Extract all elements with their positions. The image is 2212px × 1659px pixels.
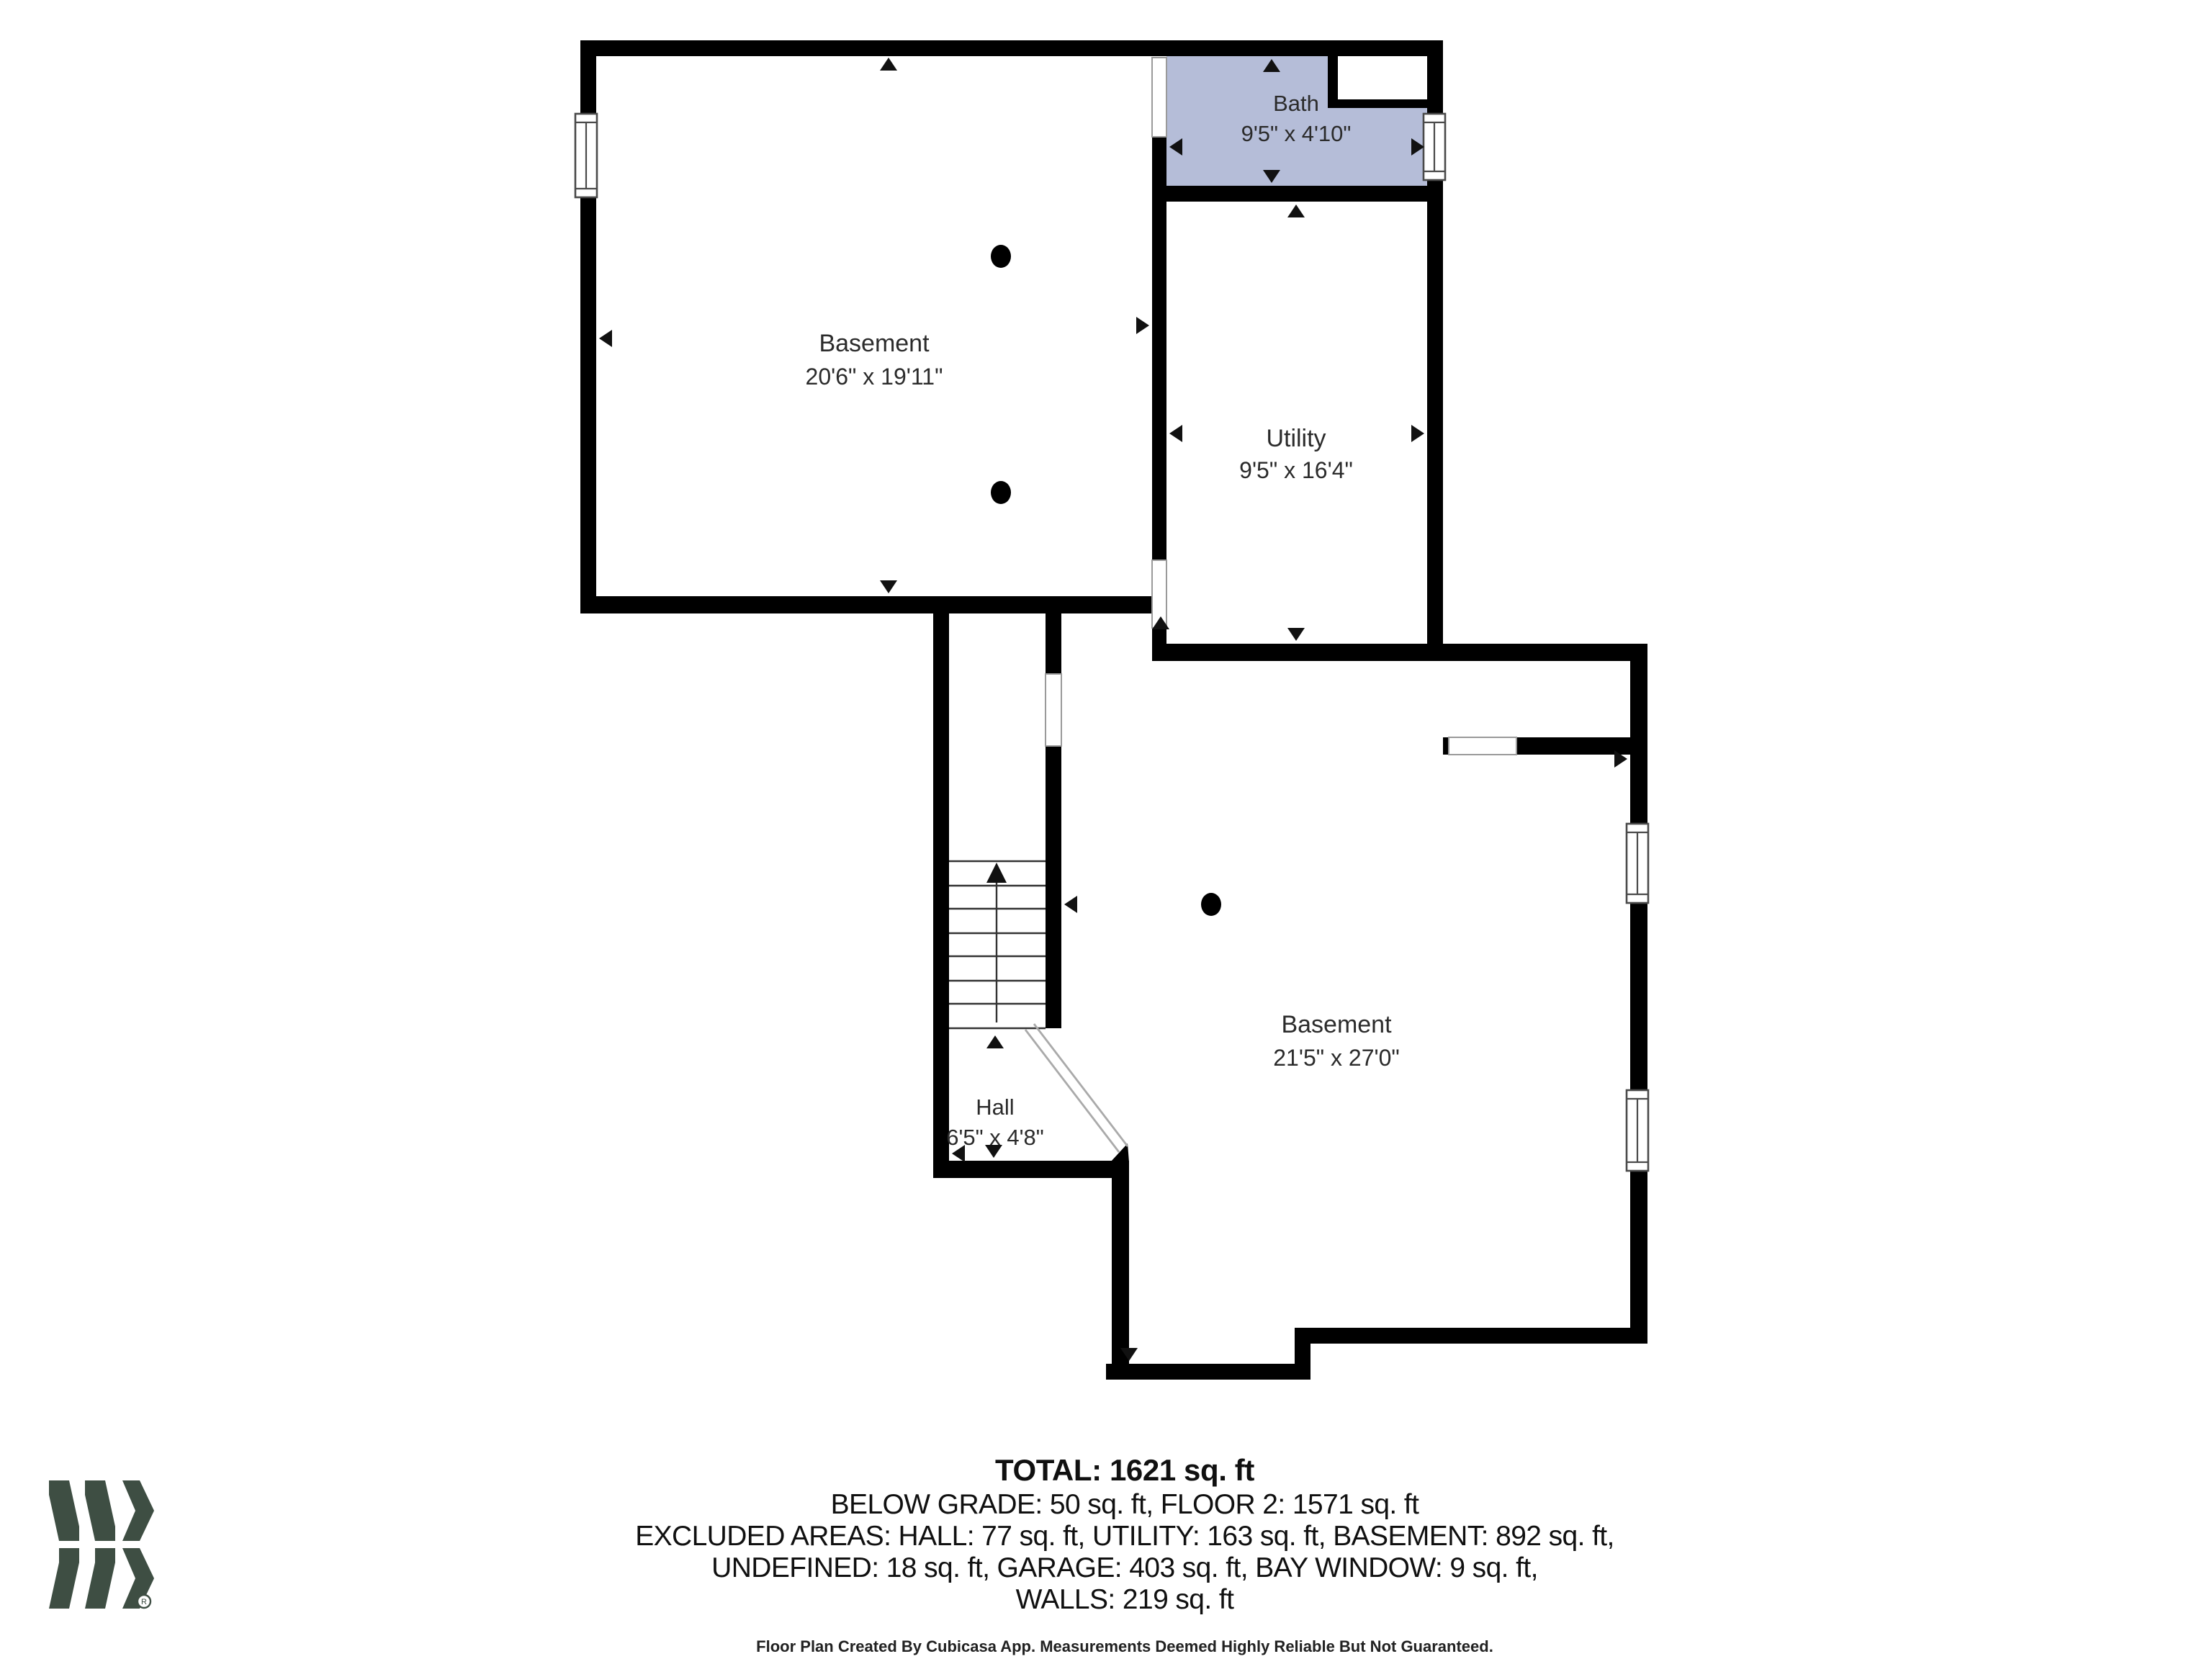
wall-bath-bottom <box>1152 186 1443 202</box>
room-dims-bath: 9'5" x 4'10" <box>1241 121 1352 146</box>
room-dims-basement-lower: 21'5" x 27'0" <box>1273 1045 1400 1071</box>
window-basement-upper-left <box>575 114 597 197</box>
room-label-hall: Hall <box>976 1094 1014 1120</box>
notch-passage-opening <box>1449 737 1516 755</box>
wall-hall-corner-angle <box>1110 1143 1129 1162</box>
wall-notch-bottom-right <box>1516 737 1647 755</box>
window-basement-lower-right-2 <box>1627 1090 1648 1171</box>
room-dims-hall: 6'5" x 4'8" <box>946 1125 1044 1150</box>
column-dot <box>991 481 1011 504</box>
wall-stair-right-bottom <box>1046 746 1061 1028</box>
window-bath-right <box>1424 114 1445 180</box>
column-dot <box>991 245 1011 268</box>
walls <box>580 40 1647 1380</box>
stair-up-arrow-icon <box>986 863 1007 883</box>
wall-bath-notch-bottom <box>1328 99 1443 108</box>
summary-total: TOTAL: 1621 sq. ft <box>995 1453 1254 1487</box>
registered-trademark-letter: R <box>141 1598 147 1606</box>
room-dims-basement-upper: 20'6" x 19'11" <box>806 364 943 390</box>
window-basement-lower-right-1 <box>1627 824 1648 903</box>
measure-arrow-down <box>880 580 897 593</box>
summary-line-2: EXCLUDED AREAS: HALL: 77 sq. ft, UTILITY… <box>635 1521 1614 1552</box>
wall-notch-bottom-left <box>1443 737 1449 755</box>
staircase <box>949 861 1046 1028</box>
stairwell-opening <box>1046 674 1061 746</box>
measure-arrow-right <box>1411 425 1424 442</box>
windows <box>575 114 1648 1171</box>
measure-arrow-left <box>1064 896 1077 913</box>
measure-arrow-left <box>599 330 612 347</box>
footer-disclaimer: Floor Plan Created By Cubicasa App. Meas… <box>756 1637 1493 1655</box>
measure-arrow-up <box>986 1035 1004 1048</box>
room-label-basement-upper: Basement <box>819 330 930 357</box>
measure-arrow-down <box>1287 628 1305 641</box>
measure-arrow-left <box>1169 425 1182 442</box>
room-labels: Basement 20'6" x 19'11" Bath 9'5" x 4'10… <box>806 91 1400 1150</box>
summary-line-4: WALLS: 219 sq. ft <box>1016 1584 1234 1615</box>
area-summary: TOTAL: 1621 sq. ft BELOW GRADE: 50 sq. f… <box>635 1453 1614 1655</box>
wall-stair-right-top <box>1046 613 1061 674</box>
bath-door-opening <box>1152 58 1166 137</box>
floorplan-canvas: Basement 20'6" x 19'11" Bath 9'5" x 4'10… <box>0 0 2212 1659</box>
wall-top <box>580 40 1443 56</box>
room-label-bath: Bath <box>1273 91 1319 116</box>
room-label-utility: Utility <box>1266 425 1326 452</box>
support-columns <box>991 245 1221 916</box>
cubicasa-logo: R <box>49 1480 154 1609</box>
measure-arrow-up <box>1287 204 1305 217</box>
summary-line-3: UNDEFINED: 18 sq. ft, GARAGE: 403 sq. ft… <box>711 1552 1538 1583</box>
wall-stair-left <box>933 613 949 1178</box>
utility-door-opening <box>1152 560 1166 628</box>
room-dims-utility: 9'5" x 16'4" <box>1239 457 1353 483</box>
measure-arrow-right <box>1136 317 1149 334</box>
summary-line-1: BELOW GRADE: 50 sq. ft, FLOOR 2: 1571 sq… <box>831 1489 1420 1520</box>
measure-arrow-up <box>880 58 897 71</box>
wall-hall-bottom <box>933 1161 1112 1178</box>
wall-right-lower <box>1630 644 1647 1344</box>
wall-basement-upper-bottom <box>580 596 1166 613</box>
floorplan-page: Basement 20'6" x 19'11" Bath 9'5" x 4'10… <box>0 0 2212 1659</box>
wall-basement-lower-bottom-right <box>1295 1328 1647 1344</box>
wall-hall-right <box>1112 1161 1129 1380</box>
column-dot <box>1201 893 1221 916</box>
room-label-basement-lower: Basement <box>1281 1011 1392 1038</box>
wall-basement-lower-bottom-left <box>1106 1364 1310 1380</box>
wall-utility-bottom <box>1152 644 1647 661</box>
